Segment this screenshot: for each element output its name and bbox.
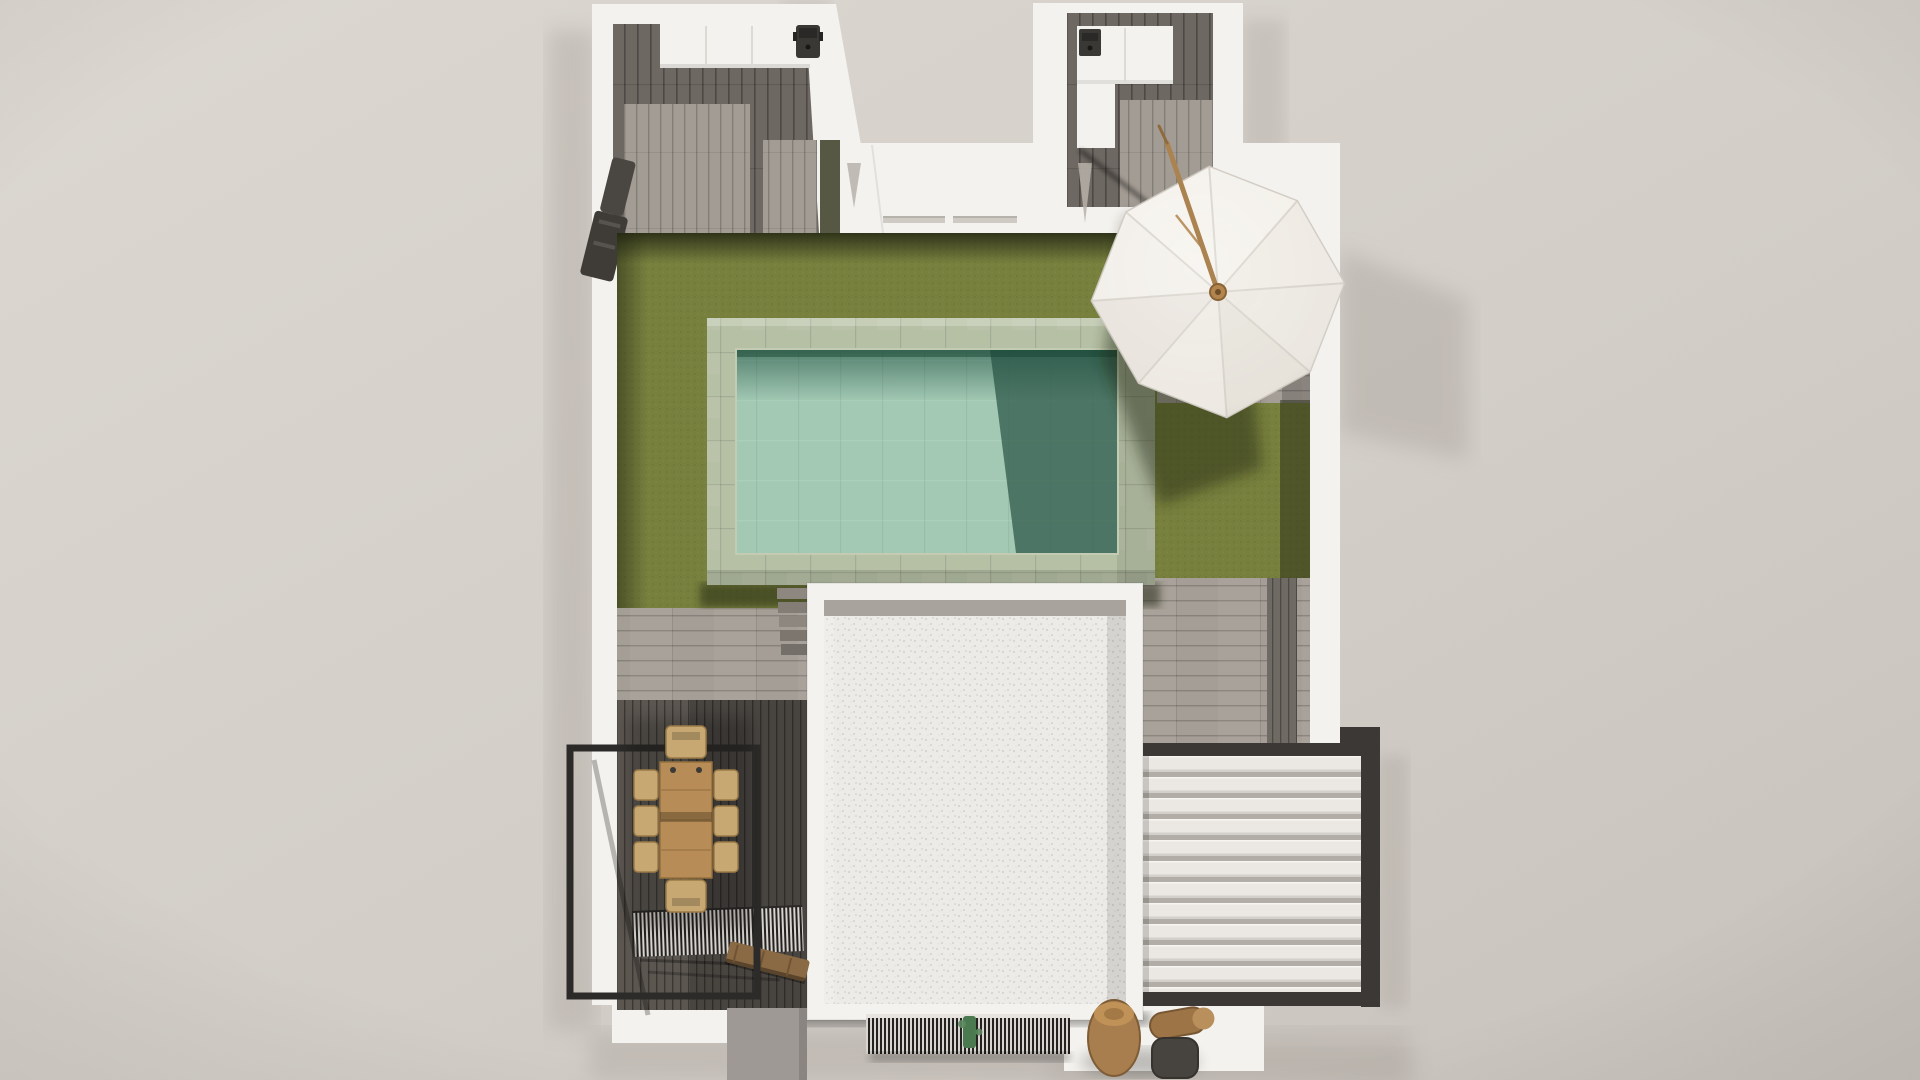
vignette-overlay [0, 0, 1920, 1080]
render-viewport [0, 0, 1920, 1080]
site-plan-render [0, 0, 1920, 1080]
